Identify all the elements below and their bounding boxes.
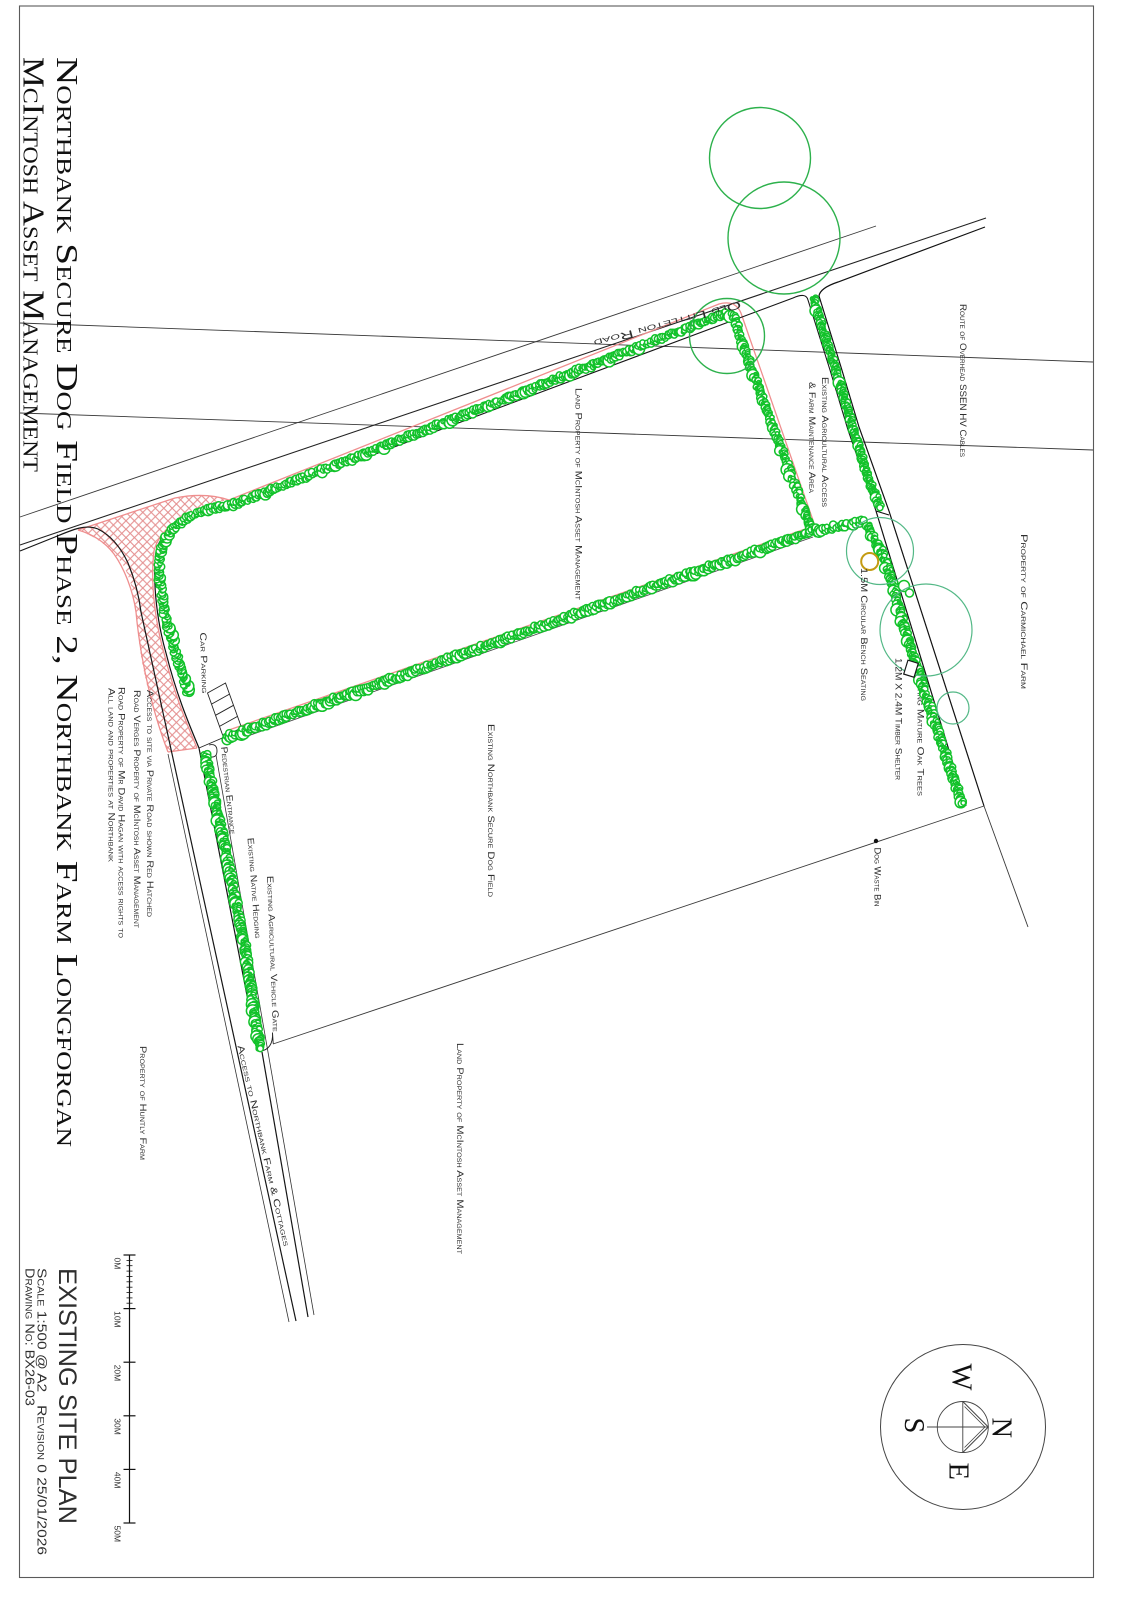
svg-text:S: S	[898, 1418, 929, 1434]
svg-text:Existing Native Hedging: Existing Native Hedging	[246, 837, 264, 939]
svg-text:Northbank Secure Dog Field Pha: Northbank Secure Dog Field Phase 2, Nort…	[50, 57, 84, 1147]
svg-text:30M: 30M	[113, 1418, 123, 1435]
svg-text:Existing Northbank Secure Dog: Existing Northbank Secure Dog Field	[486, 724, 496, 898]
svg-text:1.2M X 2.4M Timber Shelter: 1.2M X 2.4M Timber Shelter	[894, 658, 904, 781]
svg-text:& Farm Maintenance Area: & Farm Maintenance Area	[807, 382, 817, 493]
svg-text:Old Littleton Road: Old Littleton Road	[592, 298, 742, 349]
svg-text:50M: 50M	[113, 1526, 123, 1543]
svg-text:Land Property of McIntosh Asse: Land Property of McIntosh Asset Manageme…	[574, 388, 584, 600]
svg-text:E: E	[943, 1463, 974, 1480]
svg-text:Existing Agricultural Access: Existing Agricultural Access	[820, 377, 830, 507]
svg-text:McIntosh Asset Management: McIntosh Asset Management	[17, 57, 51, 472]
svg-text:Access to site via Private Roa: Access to site via Private Road shown Re…	[145, 690, 155, 918]
svg-text:N: N	[986, 1418, 1017, 1439]
svg-text:Property of Huntly Farm: Property of Huntly Farm	[138, 1046, 148, 1160]
svg-text:W: W	[946, 1364, 977, 1391]
svg-text:All land and properties at Nor: All land and properties at Northbank	[107, 688, 117, 862]
svg-text:0M: 0M	[113, 1258, 123, 1270]
svg-text:Drawing No: BX26-03: Drawing No: BX26-03	[23, 1268, 38, 1406]
svg-text:40M: 40M	[113, 1472, 123, 1489]
svg-text:Road Property of Mr David Haga: Road Property of Mr David Hagan with acc…	[117, 687, 127, 938]
svg-text:EXISTING SITE PLAN: EXISTING SITE PLAN	[53, 1268, 81, 1524]
svg-text:Property of Carmichael Farm: Property of Carmichael Farm	[1019, 534, 1029, 689]
svg-text:10M: 10M	[113, 1311, 123, 1328]
svg-text:Car Parking: Car Parking	[198, 632, 210, 694]
svg-text:Existing Agricultural Vehicle: Existing Agricultural Vehicle Gate	[265, 876, 281, 1032]
svg-text:1.5M Circular Bench Seating: 1.5M Circular Bench Seating	[859, 568, 869, 701]
svg-text:Land Property of McIntosh Asse: Land Property of McIntosh Asset Manageme…	[455, 1043, 465, 1254]
svg-text:20M: 20M	[113, 1365, 123, 1382]
svg-text:Route of Overhead SSEN HV Cabl: Route of Overhead SSEN HV Cables	[958, 304, 968, 457]
svg-text:Dog Waste Bin: Dog Waste Bin	[873, 848, 883, 907]
svg-text:Road Verges Property of McInto: Road Verges Property of McIntosh Asset M…	[132, 690, 142, 928]
svg-text:Access to Northbank Farm & Cot: Access to Northbank Farm & Cottages	[236, 1044, 292, 1247]
